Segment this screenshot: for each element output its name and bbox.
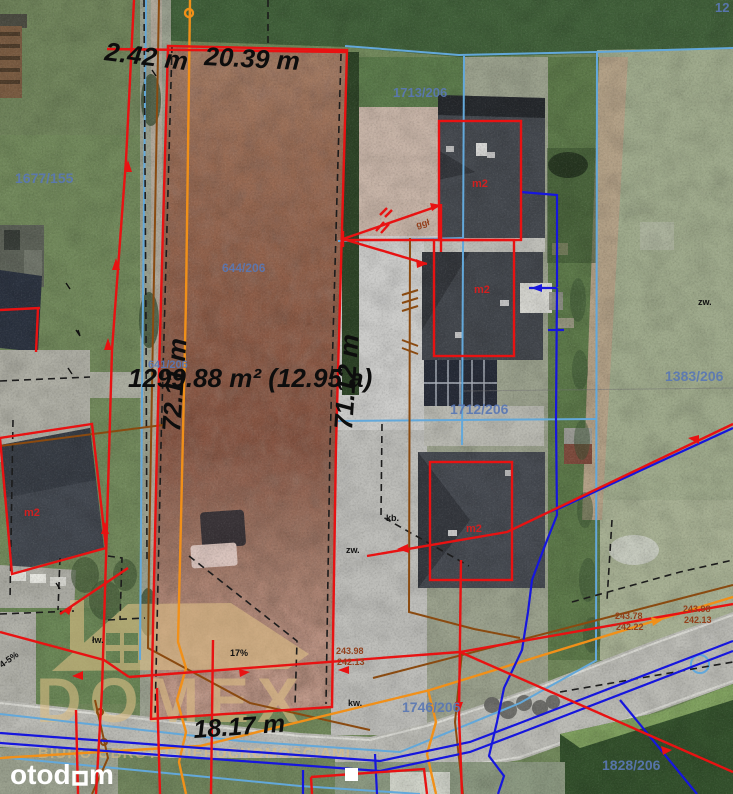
svg-text:kw.: kw. bbox=[348, 698, 362, 708]
svg-text:644/206: 644/206 bbox=[222, 261, 266, 275]
svg-text:m2: m2 bbox=[474, 284, 490, 296]
svg-text:242.13: 242.13 bbox=[684, 615, 712, 625]
svg-text:20.39 m: 20.39 m bbox=[203, 41, 301, 76]
svg-text:1746/206: 1746/206 bbox=[402, 699, 461, 715]
svg-text:łw.: łw. bbox=[92, 635, 104, 645]
svg-text:1828/206: 1828/206 bbox=[602, 757, 661, 773]
svg-text:kb.: kb. bbox=[386, 513, 399, 523]
svg-text:243.78: 243.78 bbox=[615, 611, 643, 621]
svg-text:242.22: 242.22 bbox=[616, 622, 644, 632]
svg-text:243.98: 243.98 bbox=[683, 604, 711, 614]
svg-text:1383/206: 1383/206 bbox=[665, 368, 724, 384]
svg-text:1713/206: 1713/206 bbox=[393, 85, 447, 100]
svg-text:m2: m2 bbox=[472, 178, 488, 190]
svg-text:otod: otod bbox=[10, 759, 71, 790]
svg-text:12: 12 bbox=[715, 0, 729, 15]
svg-text:m2: m2 bbox=[466, 523, 482, 535]
svg-text:17%: 17% bbox=[230, 648, 248, 658]
svg-text:m: m bbox=[89, 759, 114, 790]
svg-text:243.98: 243.98 bbox=[336, 646, 364, 656]
svg-text:m2: m2 bbox=[24, 507, 40, 519]
svg-text:641/206: 641/206 bbox=[148, 359, 188, 371]
svg-text:1677/155: 1677/155 bbox=[15, 170, 74, 186]
svg-text:1712/206: 1712/206 bbox=[450, 401, 509, 417]
svg-text:zw.: zw. bbox=[346, 545, 360, 555]
svg-text:242.13: 242.13 bbox=[337, 657, 365, 667]
svg-text:zw.: zw. bbox=[698, 297, 712, 307]
